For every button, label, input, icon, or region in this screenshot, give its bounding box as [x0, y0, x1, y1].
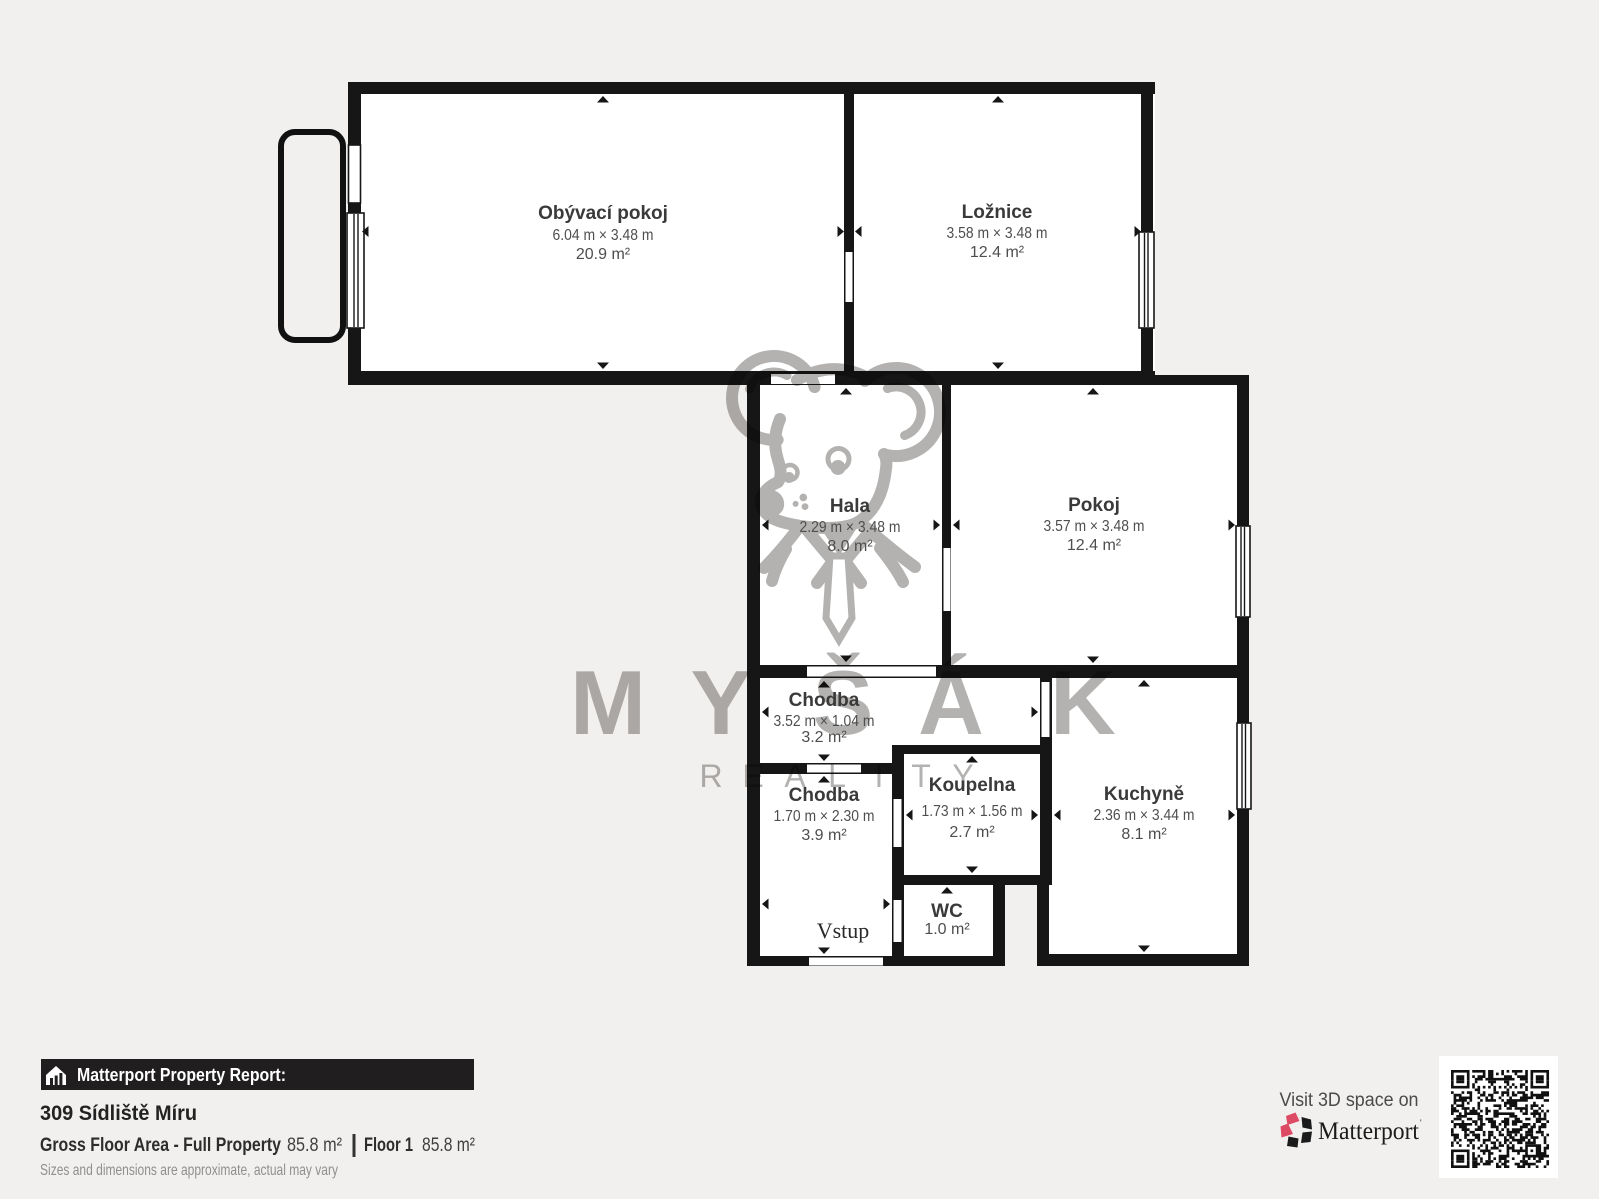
svg-text:Vstup: Vstup: [817, 918, 870, 943]
svg-text:8.1 m²: 8.1 m²: [1121, 826, 1167, 843]
svg-text:Kuchyně: Kuchyně: [1104, 784, 1184, 805]
svg-text:3.58 m × 3.48 m: 3.58 m × 3.48 m: [947, 225, 1048, 242]
svg-text:6.04 m × 3.48 m: 6.04 m × 3.48 m: [553, 227, 654, 244]
svg-text:2.7 m²: 2.7 m²: [949, 824, 995, 841]
svg-text:K: K: [1050, 653, 1116, 754]
svg-text:Obývací pokoj: Obývací pokoj: [538, 203, 668, 224]
svg-text:Gross Floor Area - Full Proper: Gross Floor Area - Full Property: [40, 1135, 281, 1156]
svg-text:Koupelna: Koupelna: [929, 775, 1016, 796]
svg-text:3.9 m²: 3.9 m²: [801, 827, 847, 844]
svg-text:1.73 m × 1.56 m: 1.73 m × 1.56 m: [922, 803, 1023, 820]
svg-text:I: I: [875, 758, 884, 794]
svg-text:2.29 m × 3.48 m: 2.29 m × 3.48 m: [800, 519, 901, 536]
svg-text:1.70 m × 2.30 m: 1.70 m × 2.30 m: [774, 808, 875, 825]
svg-text:Visit 3D space on: Visit 3D space on: [1280, 1090, 1419, 1111]
svg-text:Floor 1: Floor 1: [364, 1135, 413, 1156]
svg-text:Á: Á: [918, 653, 984, 754]
svg-text:Chodba: Chodba: [789, 785, 860, 806]
svg-text:M: M: [570, 653, 646, 754]
svg-text:Y: Y: [691, 653, 752, 754]
svg-text:E: E: [742, 758, 763, 794]
svg-text:3.52 m × 1.04 m: 3.52 m × 1.04 m: [774, 713, 875, 730]
svg-text:85.8 m²: 85.8 m²: [422, 1135, 475, 1156]
svg-text:12.4 m²: 12.4 m²: [1067, 537, 1122, 554]
svg-text:Sizes and dimensions are appro: Sizes and dimensions are approximate, ac…: [40, 1162, 338, 1179]
svg-text:Pokoj: Pokoj: [1068, 495, 1120, 516]
svg-text:8.0 m²: 8.0 m²: [827, 538, 873, 555]
svg-text:3.57 m × 3.48 m: 3.57 m × 3.48 m: [1044, 518, 1145, 535]
svg-text:20.9 m²: 20.9 m²: [576, 246, 631, 263]
svg-text:1.0 m²: 1.0 m²: [924, 921, 970, 938]
svg-text:Matterport: Matterport: [1318, 1118, 1419, 1145]
svg-text:2.36 m × 3.44 m: 2.36 m × 3.44 m: [1094, 807, 1195, 824]
svg-text:Hala: Hala: [830, 496, 871, 517]
svg-text:WC: WC: [931, 901, 963, 922]
svg-text:85.8 m²: 85.8 m²: [287, 1135, 342, 1156]
svg-text:Chodba: Chodba: [789, 690, 860, 711]
svg-text:R: R: [699, 758, 722, 794]
svg-text:Matterport Property Report:: Matterport Property Report:: [77, 1065, 286, 1085]
svg-text:Ložnice: Ložnice: [962, 202, 1033, 223]
svg-text:3.2 m²: 3.2 m²: [801, 729, 847, 746]
svg-text:309 Sídliště Míru: 309 Sídliště Míru: [40, 1102, 197, 1125]
svg-text:12.4 m²: 12.4 m²: [970, 244, 1025, 261]
